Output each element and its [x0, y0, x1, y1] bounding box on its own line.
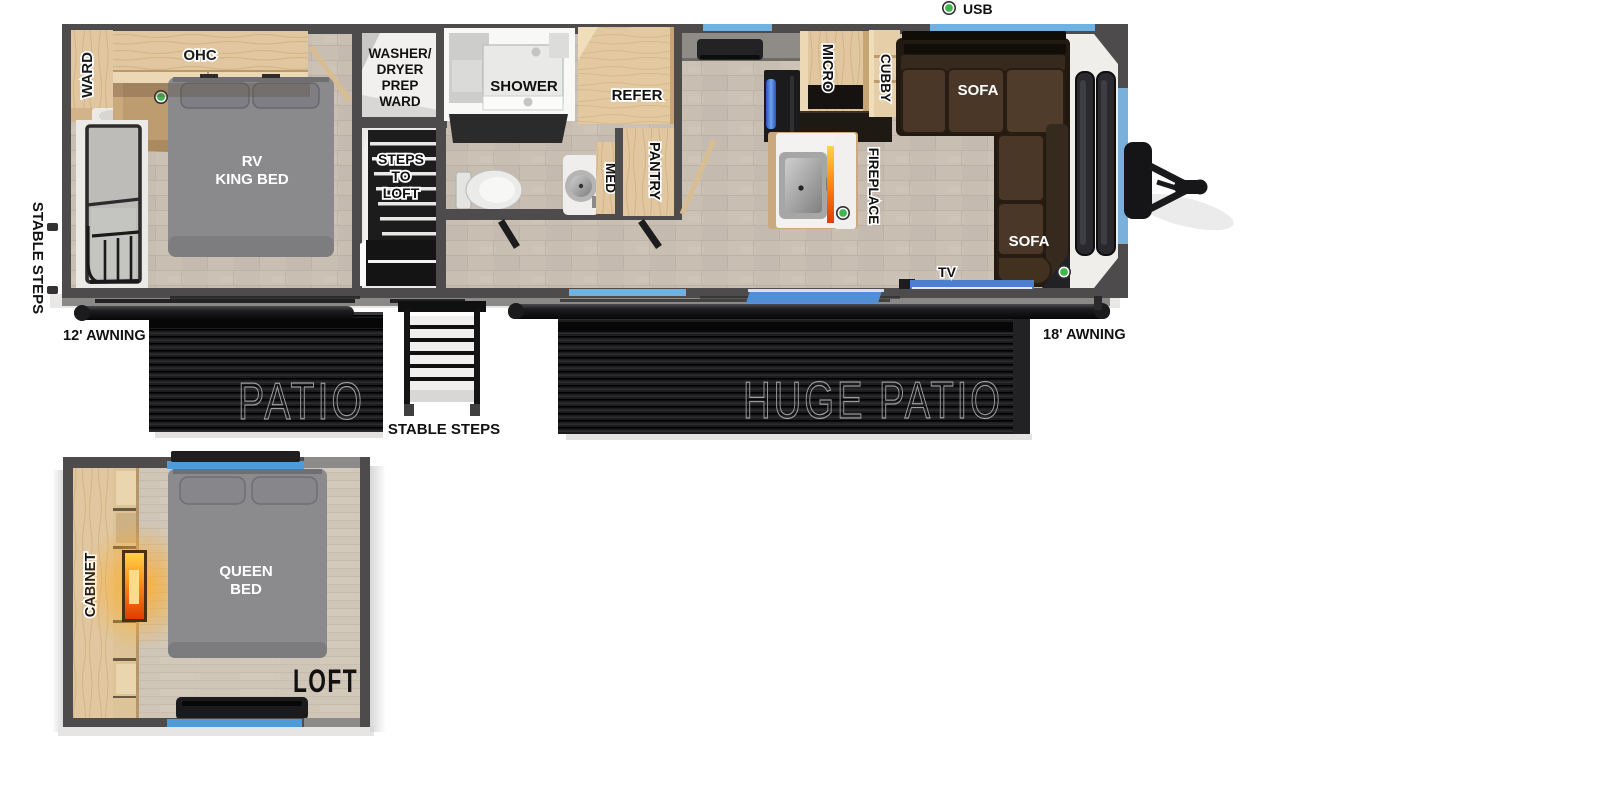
svg-text:STEPS: STEPS [378, 151, 424, 167]
svg-text:STABLE STEPS: STABLE STEPS [29, 202, 46, 314]
svg-text:TV: TV [938, 264, 957, 280]
svg-text:LOFT: LOFT [293, 663, 358, 699]
svg-text:QUEEN: QUEEN [219, 563, 272, 580]
svg-text:WASHER/: WASHER/ [368, 46, 431, 61]
svg-text:OHC: OHC [183, 47, 217, 64]
svg-text:LOFT: LOFT [383, 185, 420, 201]
svg-text:DRYER: DRYER [377, 62, 424, 77]
svg-text:PREP: PREP [382, 78, 419, 93]
svg-text:RV: RV [242, 153, 263, 170]
svg-text:CUBBY: CUBBY [878, 54, 893, 102]
svg-text:12' AWNING: 12' AWNING [63, 328, 146, 344]
svg-text:SOFA: SOFA [958, 82, 999, 99]
svg-text:PATIO: PATIO [238, 373, 365, 431]
svg-text:MICRO: MICRO [819, 44, 835, 92]
svg-text:STABLE STEPS: STABLE STEPS [388, 421, 500, 438]
svg-text:PANTRY: PANTRY [646, 142, 662, 200]
svg-text:FIREPLACE: FIREPLACE [866, 148, 881, 225]
svg-text:SHOWER: SHOWER [490, 78, 558, 95]
svg-text:WARD: WARD [79, 52, 96, 98]
svg-text:KING BED: KING BED [215, 171, 289, 188]
svg-text:BED: BED [230, 581, 262, 598]
svg-text:WARD: WARD [379, 94, 420, 109]
svg-text:USB: USB [963, 1, 993, 17]
svg-text:HUGE PATIO: HUGE PATIO [743, 372, 1003, 430]
svg-text:TO: TO [391, 168, 410, 184]
svg-text:REFER: REFER [612, 87, 663, 104]
svg-text:SOFA: SOFA [1009, 233, 1050, 250]
svg-text:18' AWNING: 18' AWNING [1043, 327, 1126, 343]
